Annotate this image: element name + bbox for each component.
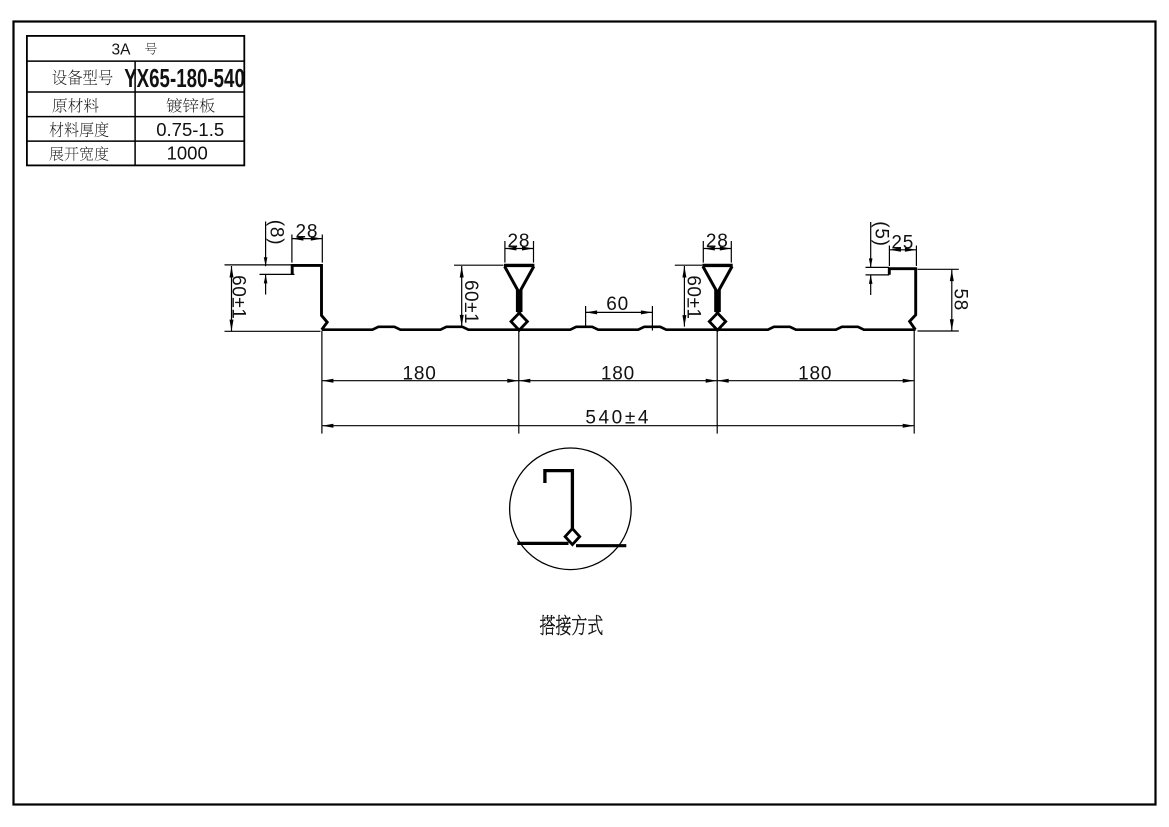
svg-text:60±1: 60±1 bbox=[460, 280, 481, 324]
svg-text:60±1: 60±1 bbox=[228, 275, 249, 319]
svg-text:3A: 3A bbox=[112, 42, 132, 59]
svg-text:1000: 1000 bbox=[167, 143, 208, 164]
svg-text:540±4: 540±4 bbox=[585, 408, 651, 429]
svg-text:60: 60 bbox=[606, 294, 629, 315]
svg-text:180: 180 bbox=[601, 363, 635, 384]
svg-text:0.75-1.5: 0.75-1.5 bbox=[156, 119, 224, 140]
svg-text:28: 28 bbox=[706, 231, 729, 252]
svg-text:25: 25 bbox=[891, 233, 914, 254]
svg-text:28: 28 bbox=[508, 231, 531, 252]
svg-text:180: 180 bbox=[798, 363, 832, 384]
svg-text:58: 58 bbox=[949, 288, 970, 311]
svg-text:60±1: 60±1 bbox=[682, 275, 703, 319]
svg-text:28: 28 bbox=[296, 221, 319, 242]
svg-text:180: 180 bbox=[403, 363, 437, 384]
svg-text:(5): (5) bbox=[871, 221, 892, 247]
svg-text:(8): (8) bbox=[265, 220, 286, 246]
svg-text:YX65-180-540: YX65-180-540 bbox=[124, 63, 245, 93]
